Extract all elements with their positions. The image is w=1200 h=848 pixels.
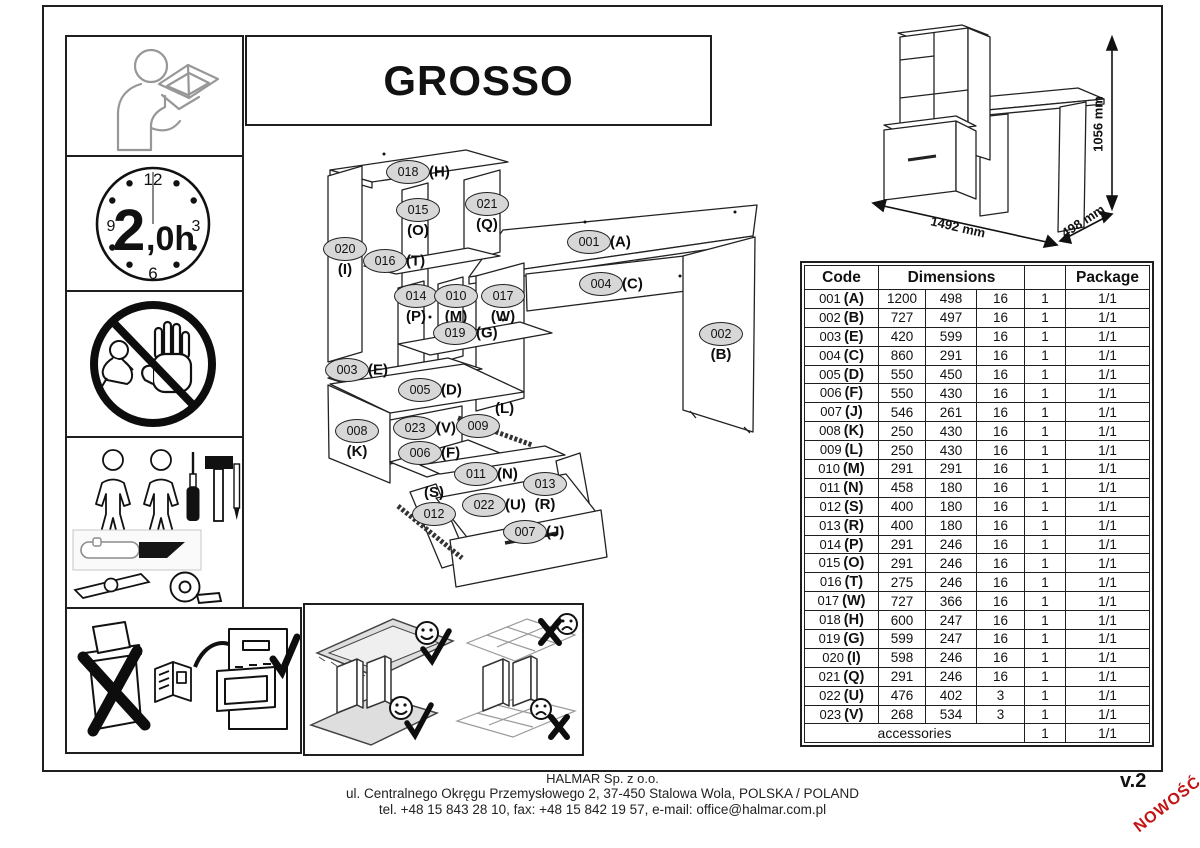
part-value: 291 <box>926 346 977 365</box>
manual-book-icon <box>155 662 191 702</box>
part-value: 16 <box>977 554 1025 573</box>
part-value: 1 <box>1025 497 1066 516</box>
part-value: 430 <box>926 441 977 460</box>
keep-manual-do-not-discard-icon <box>67 609 300 752</box>
part-code: 022(U) <box>805 686 879 705</box>
part-value: 1/1 <box>1066 516 1150 535</box>
instruction-sheet: GROSSO 12 3 <box>0 0 1200 848</box>
part-value: 1 <box>1025 648 1066 667</box>
part-value: 534 <box>926 705 977 724</box>
part-value: 476 <box>879 686 926 705</box>
part-value: 1 <box>1025 441 1066 460</box>
part-value: 275 <box>879 573 926 592</box>
part-value: 1/1 <box>1066 384 1150 403</box>
part-value: 550 <box>879 384 926 403</box>
header-package: Package <box>1066 266 1150 290</box>
table-row: 019(G)5992471611/1 <box>805 630 1150 649</box>
part-code: 013(R) <box>805 516 879 535</box>
part-value: 180 <box>926 497 977 516</box>
part-value: 727 <box>879 592 926 611</box>
part-value: 430 <box>926 422 977 441</box>
accessories-cell: 1/1 <box>1066 724 1150 743</box>
header-dimensions-qty <box>1025 266 1066 290</box>
screwdriver-icon <box>187 452 200 521</box>
part-code: 002(B) <box>805 308 879 327</box>
clock-numeral-6: 6 <box>148 264 157 283</box>
table-row: 013(R)4001801611/1 <box>805 516 1150 535</box>
table-row: 014(P)2912461611/1 <box>805 535 1150 554</box>
part-value: 16 <box>977 611 1025 630</box>
part-value: 1 <box>1025 705 1066 724</box>
part-value: 1 <box>1025 422 1066 441</box>
page-title: GROSSO <box>383 57 573 105</box>
part-value: 1/1 <box>1066 554 1150 573</box>
table-row: 007(J)5462611611/1 <box>805 403 1150 422</box>
part-value: 1 <box>1025 327 1066 346</box>
part-value: 458 <box>879 478 926 497</box>
part-value: 600 <box>879 611 926 630</box>
part-code: 015(O) <box>805 554 879 573</box>
company-contact: tel. +48 15 843 28 10, fax: +48 15 842 1… <box>42 802 1163 818</box>
part-value: 250 <box>879 441 926 460</box>
parts-table: Code Dimensions Package 001(A)1200498161… <box>804 265 1150 743</box>
part-value: 246 <box>926 648 977 667</box>
part-value: 1 <box>1025 554 1066 573</box>
part-code: 020(I) <box>805 648 879 667</box>
part-code: 008(K) <box>805 422 879 441</box>
header-code: Code <box>805 266 879 290</box>
part-value: 550 <box>879 365 926 384</box>
duration-hours-big: 2 <box>113 198 145 263</box>
part-value: 599 <box>879 630 926 649</box>
part-value: 291 <box>879 535 926 554</box>
part-code: 021(Q) <box>805 667 879 686</box>
part-value: 16 <box>977 460 1025 479</box>
part-value: 1 <box>1025 611 1066 630</box>
assembly-time-clock-icon: 12 3 6 9 2 ,0h <box>67 157 242 292</box>
part-value: 1/1 <box>1066 478 1150 497</box>
part-value: 1 <box>1025 516 1066 535</box>
part-value: 1 <box>1025 686 1066 705</box>
part-value: 1 <box>1025 365 1066 384</box>
read-manual-box <box>65 35 244 159</box>
part-value: 291 <box>879 460 926 479</box>
two-people-and-tools-icon <box>67 438 242 607</box>
part-value: 450 <box>926 365 977 384</box>
table-row: 012(S)4001801611/1 <box>805 497 1150 516</box>
part-value: 1/1 <box>1066 422 1150 441</box>
table-header-row: Code Dimensions Package <box>805 266 1150 290</box>
table-row: 011(N)4581801611/1 <box>805 478 1150 497</box>
part-value: 1 <box>1025 403 1066 422</box>
part-value: 1 <box>1025 460 1066 479</box>
part-code: 011(N) <box>805 478 879 497</box>
part-value: 16 <box>977 573 1025 592</box>
table-row: 021(Q)2912461611/1 <box>805 667 1150 686</box>
parts-table-wrapper: Code Dimensions Package 001(A)1200498161… <box>800 261 1154 747</box>
part-code: 007(J) <box>805 403 879 422</box>
part-value: 1200 <box>879 290 926 309</box>
assemble-on-soft-surface-icon <box>305 605 582 754</box>
part-value: 400 <box>879 516 926 535</box>
part-value: 1/1 <box>1066 630 1150 649</box>
part-value: 430 <box>926 384 977 403</box>
part-code: 019(G) <box>805 630 879 649</box>
part-value: 1 <box>1025 478 1066 497</box>
part-code: 014(P) <box>805 535 879 554</box>
part-value: 1/1 <box>1066 497 1150 516</box>
part-value: 727 <box>879 308 926 327</box>
person-reading-manual-icon <box>67 37 242 157</box>
part-value: 246 <box>926 573 977 592</box>
accessories-row: accessories11/1 <box>805 724 1150 743</box>
footer: HALMAR Sp. z o.o. ul. Centralnego Okręgu… <box>42 771 1163 818</box>
company-address: ul. Centralnego Okręgu Przemysłowego 2, … <box>42 786 1163 802</box>
part-value: 1 <box>1025 573 1066 592</box>
part-value: 16 <box>977 667 1025 686</box>
part-value: 1 <box>1025 630 1066 649</box>
part-code: 001(A) <box>805 290 879 309</box>
part-value: 1/1 <box>1066 573 1150 592</box>
utility-knife-icon <box>73 530 201 570</box>
part-value: 1/1 <box>1066 327 1150 346</box>
table-row: 020(I)5982461611/1 <box>805 648 1150 667</box>
part-value: 1/1 <box>1066 346 1150 365</box>
part-value: 546 <box>879 403 926 422</box>
table-row: 015(O)2912461611/1 <box>805 554 1150 573</box>
assembled-desk-drawing <box>868 8 1166 258</box>
part-value: 16 <box>977 648 1025 667</box>
part-code: 012(S) <box>805 497 879 516</box>
part-code: 006(F) <box>805 384 879 403</box>
table-row: 001(A)12004981611/1 <box>805 290 1150 309</box>
part-value: 1 <box>1025 535 1066 554</box>
part-value: 1 <box>1025 667 1066 686</box>
part-value: 1/1 <box>1066 290 1150 309</box>
part-value: 1/1 <box>1066 535 1150 554</box>
table-row: 003(E)4205991611/1 <box>805 327 1150 346</box>
table-row: 002(B)7274971611/1 <box>805 308 1150 327</box>
part-value: 1 <box>1025 384 1066 403</box>
version-label: v.2 <box>1120 770 1146 793</box>
part-code: 003(E) <box>805 327 879 346</box>
part-value: 599 <box>926 327 977 346</box>
part-value: 366 <box>926 592 977 611</box>
part-value: 1/1 <box>1066 592 1150 611</box>
company-name: HALMAR Sp. z o.o. <box>42 771 1163 786</box>
part-value: 16 <box>977 441 1025 460</box>
hammer-icon <box>205 456 233 521</box>
product-title-box: GROSSO <box>245 35 712 126</box>
part-value: 1 <box>1025 308 1066 327</box>
part-value: 246 <box>926 667 977 686</box>
table-row: 005(D)5504501611/1 <box>805 365 1150 384</box>
part-value: 860 <box>879 346 926 365</box>
part-value: 1/1 <box>1066 648 1150 667</box>
exploded-parts-diagram <box>300 140 790 615</box>
part-value: 246 <box>926 535 977 554</box>
part-value: 1/1 <box>1066 308 1150 327</box>
keep-manual-box <box>65 607 302 754</box>
part-code: 023(V) <box>805 705 879 724</box>
part-value: 420 <box>879 327 926 346</box>
header-dimensions: Dimensions <box>879 266 1025 290</box>
soft-surface-box <box>303 603 584 756</box>
part-value: 3 <box>977 705 1025 724</box>
table-row: 017(W)7273661611/1 <box>805 592 1150 611</box>
part-value: 16 <box>977 516 1025 535</box>
part-value: 1 <box>1025 290 1066 309</box>
part-value: 16 <box>977 308 1025 327</box>
table-row: 006(F)5504301611/1 <box>805 384 1150 403</box>
part-value: 400 <box>879 497 926 516</box>
no-children-box <box>65 290 244 440</box>
part-value: 291 <box>879 554 926 573</box>
part-value: 16 <box>977 290 1025 309</box>
table-row: 023(V)268534311/1 <box>805 705 1150 724</box>
part-value: 1 <box>1025 592 1066 611</box>
part-value: 16 <box>977 422 1025 441</box>
table-row: 009(L)2504301611/1 <box>805 441 1150 460</box>
part-value: 3 <box>977 686 1025 705</box>
table-row: 008(K)2504301611/1 <box>805 422 1150 441</box>
pencil-icon <box>234 464 240 520</box>
part-value: 247 <box>926 611 977 630</box>
tools-required-box <box>65 436 244 609</box>
spirit-level-icon <box>75 574 149 598</box>
part-value: 497 <box>926 308 977 327</box>
assembly-time-box: 12 3 6 9 2 ,0h <box>65 155 244 294</box>
part-value: 1/1 <box>1066 441 1150 460</box>
part-value: 16 <box>977 327 1025 346</box>
part-code: 010(M) <box>805 460 879 479</box>
part-value: 291 <box>926 460 977 479</box>
part-value: 1/1 <box>1066 686 1150 705</box>
duration-hours-small: ,0h <box>146 220 195 258</box>
part-value: 16 <box>977 630 1025 649</box>
part-value: 1/1 <box>1066 667 1150 686</box>
part-value: 16 <box>977 384 1025 403</box>
part-value: 498 <box>926 290 977 309</box>
part-value: 180 <box>926 478 977 497</box>
part-code: 004(C) <box>805 346 879 365</box>
part-value: 261 <box>926 403 977 422</box>
part-value: 1 <box>1025 346 1066 365</box>
table-row: 004(C)8602911611/1 <box>805 346 1150 365</box>
part-value: 16 <box>977 478 1025 497</box>
part-value: 180 <box>926 516 977 535</box>
part-value: 1/1 <box>1066 365 1150 384</box>
part-value: 250 <box>879 422 926 441</box>
part-value: 291 <box>879 667 926 686</box>
table-row: 010(M)2912911611/1 <box>805 460 1150 479</box>
part-value: 16 <box>977 365 1025 384</box>
part-value: 1/1 <box>1066 705 1150 724</box>
table-row: 016(T)2752461611/1 <box>805 573 1150 592</box>
part-code: 009(L) <box>805 441 879 460</box>
keep-children-away-icon <box>67 292 242 438</box>
part-code: 018(H) <box>805 611 879 630</box>
part-value: 16 <box>977 497 1025 516</box>
clock-numeral-12: 12 <box>144 170 163 189</box>
part-value: 402 <box>926 686 977 705</box>
part-code: 016(T) <box>805 573 879 592</box>
accessories-cell: accessories <box>805 724 1025 743</box>
part-value: 247 <box>926 630 977 649</box>
part-value: 1/1 <box>1066 403 1150 422</box>
part-value: 1/1 <box>1066 460 1150 479</box>
part-code: 005(D) <box>805 365 879 384</box>
part-value: 16 <box>977 535 1025 554</box>
part-value: 16 <box>977 346 1025 365</box>
part-value: 1/1 <box>1066 611 1150 630</box>
part-value: 16 <box>977 403 1025 422</box>
part-value: 268 <box>879 705 926 724</box>
table-row: 018(H)6002471611/1 <box>805 611 1150 630</box>
part-code: 017(W) <box>805 592 879 611</box>
part-value: 16 <box>977 592 1025 611</box>
part-value: 246 <box>926 554 977 573</box>
table-row: 022(U)476402311/1 <box>805 686 1150 705</box>
tape-measure-icon <box>171 573 222 604</box>
part-value: 598 <box>879 648 926 667</box>
accessories-cell: 1 <box>1025 724 1066 743</box>
